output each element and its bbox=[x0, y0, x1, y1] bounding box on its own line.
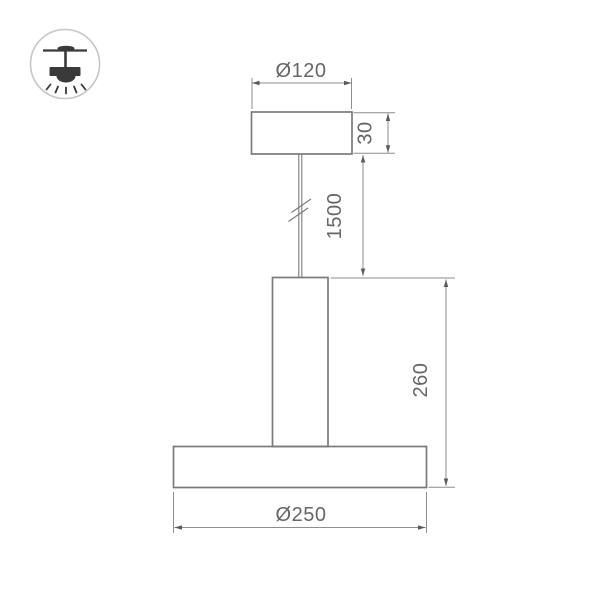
dim-canopy-diameter-label: Ø120 bbox=[276, 60, 327, 82]
icon-canopy bbox=[58, 46, 75, 52]
dim-cable-length: 1500 bbox=[324, 155, 365, 276]
dim-arrow bbox=[175, 525, 183, 529]
dim-arrow bbox=[418, 525, 426, 529]
suspension-cable bbox=[299, 154, 302, 277]
dim-arrow bbox=[344, 81, 352, 85]
lamp-outline bbox=[174, 112, 427, 488]
dim-canopy-diameter: Ø120 bbox=[252, 60, 352, 109]
dim-base-diameter-label: Ø250 bbox=[276, 504, 327, 526]
cable-break-symbol bbox=[289, 199, 312, 222]
dim-arrow bbox=[444, 479, 448, 487]
lamp-body-outline bbox=[273, 278, 329, 447]
dim-arrow bbox=[386, 114, 390, 122]
icon-lamp-shade bbox=[50, 67, 81, 76]
base-disc-outline bbox=[174, 447, 427, 488]
technical-drawing-canvas: Ø120 30 1500 260 bbox=[0, 0, 600, 600]
dim-body-height-label: 260 bbox=[410, 363, 432, 398]
dim-canopy-height: 30 bbox=[354, 113, 396, 153]
dim-cable-length-label: 1500 bbox=[324, 193, 346, 240]
dim-arrow bbox=[444, 280, 448, 288]
dim-body-height: 260 bbox=[331, 278, 456, 487]
dim-arrow bbox=[386, 145, 390, 153]
dim-arrow bbox=[361, 269, 365, 277]
dim-canopy-height-label: 30 bbox=[355, 121, 377, 144]
dim-base-diameter: Ø250 bbox=[174, 492, 427, 533]
canopy-outline bbox=[252, 112, 353, 154]
product-dimension-diagram: Ø120 30 1500 260 bbox=[0, 0, 600, 600]
pendant-mount-icon bbox=[31, 30, 100, 99]
dim-arrow bbox=[252, 81, 260, 85]
dim-arrow bbox=[361, 155, 365, 163]
